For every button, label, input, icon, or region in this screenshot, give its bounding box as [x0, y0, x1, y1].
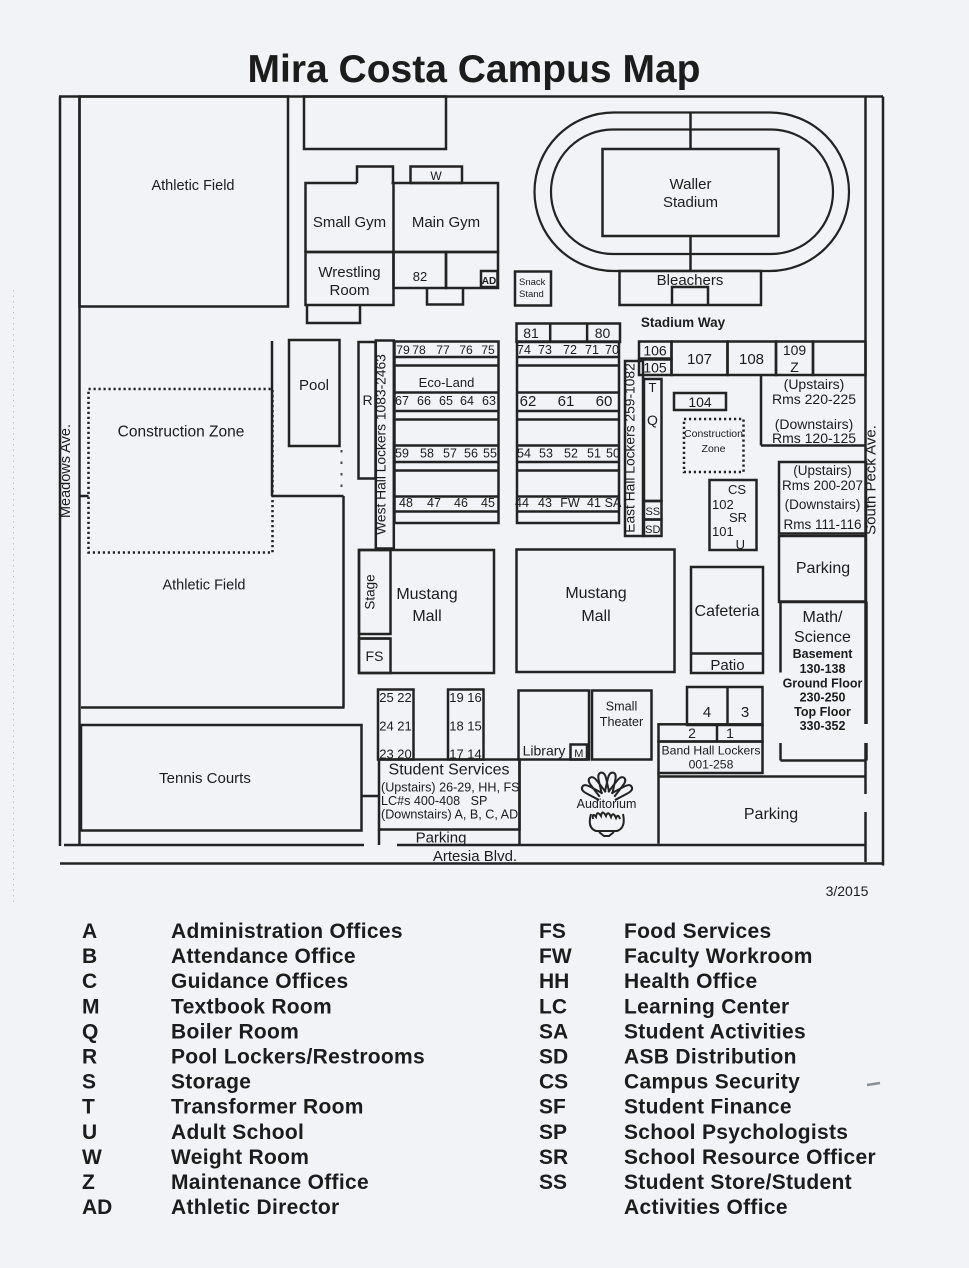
- svg-text:Transformer Room: Transformer Room: [171, 1096, 364, 1119]
- svg-text:130-138: 130-138: [800, 662, 846, 676]
- svg-text:Boiler Room: Boiler Room: [171, 1020, 299, 1043]
- svg-text:Meadows Ave.: Meadows Ave.: [58, 424, 74, 518]
- svg-text:Z: Z: [82, 1171, 95, 1194]
- svg-text:Stand: Stand: [519, 289, 544, 300]
- svg-text:Pool Lockers/Restrooms: Pool Lockers/Restrooms: [171, 1046, 425, 1069]
- svg-text:Campus Security: Campus Security: [624, 1071, 800, 1094]
- svg-text:73: 73: [538, 343, 552, 357]
- svg-text:Zone: Zone: [702, 443, 726, 455]
- svg-text:Learning Center: Learning Center: [624, 995, 790, 1018]
- svg-text:Stadium Way: Stadium Way: [641, 315, 726, 330]
- svg-text:Z: Z: [790, 359, 799, 375]
- svg-text:Parking: Parking: [796, 560, 850, 577]
- svg-text:56: 56: [464, 447, 478, 461]
- svg-text:W: W: [82, 1146, 102, 1169]
- svg-text:66: 66: [417, 394, 431, 408]
- svg-text:Stadium: Stadium: [663, 194, 718, 211]
- svg-text:SP: SP: [539, 1121, 567, 1144]
- svg-text:63: 63: [482, 394, 496, 408]
- svg-text:Theater: Theater: [600, 715, 643, 729]
- svg-text:Activities Office: Activities Office: [624, 1196, 788, 1219]
- svg-text:Health Office: Health Office: [624, 970, 757, 993]
- svg-text:41: 41: [587, 496, 601, 510]
- svg-text:59: 59: [395, 447, 409, 461]
- svg-text:Parking: Parking: [416, 830, 467, 847]
- svg-text:Storage: Storage: [171, 1071, 251, 1094]
- svg-text:001-258: 001-258: [689, 758, 734, 772]
- svg-text:46: 46: [454, 496, 468, 510]
- svg-text:School Resource Officer: School Resource Officer: [624, 1146, 876, 1169]
- svg-text:Eco-Land: Eco-Land: [419, 375, 475, 390]
- svg-text:51: 51: [587, 447, 601, 461]
- svg-text:104: 104: [688, 394, 712, 410]
- svg-text:65: 65: [439, 394, 453, 408]
- svg-text:Ground Floor: Ground Floor: [783, 677, 863, 691]
- svg-text:18 15: 18 15: [449, 719, 482, 734]
- svg-text:1: 1: [726, 725, 734, 741]
- svg-text:Textbook Room: Textbook Room: [171, 995, 332, 1018]
- svg-text:101: 101: [712, 524, 734, 539]
- svg-text:Top Floor: Top Floor: [794, 705, 851, 719]
- svg-text:Q: Q: [647, 412, 658, 428]
- svg-text:58: 58: [420, 447, 434, 461]
- svg-text:(Upstairs) 26-29, HH, FS: (Upstairs) 26-29, HH, FS: [381, 781, 520, 795]
- svg-text:81: 81: [523, 325, 539, 341]
- svg-text:SD: SD: [539, 1046, 568, 1069]
- svg-text:53: 53: [539, 447, 553, 461]
- svg-text:45: 45: [481, 496, 495, 510]
- svg-text:(Upstairs): (Upstairs): [784, 376, 845, 392]
- svg-text:Mall: Mall: [581, 608, 610, 625]
- svg-text:HH: HH: [539, 970, 569, 993]
- svg-text:Tennis Courts: Tennis Courts: [159, 770, 251, 787]
- svg-text:77: 77: [436, 343, 450, 357]
- svg-text:Main Gym: Main Gym: [412, 214, 480, 231]
- svg-text:47: 47: [427, 496, 441, 510]
- svg-text:Rms 111-116: Rms 111-116: [783, 517, 861, 532]
- svg-text:Math/: Math/: [802, 609, 843, 626]
- svg-text:Science: Science: [794, 629, 851, 646]
- svg-text:Guidance Offices: Guidance Offices: [171, 970, 349, 993]
- svg-text:Food Services: Food Services: [624, 920, 771, 943]
- svg-text:Basement: Basement: [793, 647, 854, 661]
- svg-text:SA: SA: [539, 1020, 568, 1043]
- svg-text:Adult School: Adult School: [171, 1121, 304, 1144]
- svg-text:Rms 120-125: Rms 120-125: [772, 430, 856, 446]
- svg-text:R: R: [82, 1046, 97, 1069]
- svg-text:Athletic Field: Athletic Field: [162, 578, 245, 594]
- svg-text:T: T: [82, 1096, 95, 1119]
- svg-text:76: 76: [459, 343, 473, 357]
- svg-text:Artesia Blvd.: Artesia Blvd.: [433, 848, 517, 865]
- svg-text:SA: SA: [605, 496, 622, 510]
- svg-text:Small Gym: Small Gym: [313, 214, 386, 231]
- svg-text:67: 67: [395, 394, 409, 408]
- svg-text:44: 44: [515, 496, 529, 510]
- svg-text:50: 50: [606, 447, 620, 461]
- svg-text:M: M: [82, 995, 100, 1018]
- svg-text:AD: AD: [482, 276, 496, 287]
- svg-text:SS: SS: [645, 506, 660, 518]
- svg-text:Faculty Workroom: Faculty Workroom: [624, 945, 813, 968]
- svg-text:SS: SS: [539, 1171, 567, 1194]
- svg-text:78: 78: [412, 343, 426, 357]
- svg-text:Q: Q: [82, 1020, 98, 1043]
- svg-text:Athletic Field: Athletic Field: [151, 178, 234, 194]
- svg-text:AD: AD: [82, 1196, 112, 1219]
- svg-text:43: 43: [538, 496, 552, 510]
- svg-text:B: B: [82, 945, 97, 968]
- svg-text:FS: FS: [366, 648, 384, 664]
- svg-text:79: 79: [396, 343, 410, 357]
- svg-text:ASB Distribution: ASB Distribution: [624, 1046, 797, 1069]
- svg-text:107: 107: [687, 351, 712, 368]
- svg-text:(Downstairs) A, B, C, AD: (Downstairs) A, B, C, AD: [381, 808, 518, 822]
- svg-text:Mustang: Mustang: [396, 586, 457, 603]
- svg-text:Rms 200-207: Rms 200-207: [782, 478, 863, 493]
- svg-text:52: 52: [564, 447, 578, 461]
- svg-text:T: T: [649, 380, 657, 395]
- svg-text:S: S: [82, 1071, 96, 1094]
- svg-text:SR: SR: [539, 1146, 568, 1169]
- svg-text:Athletic Director: Athletic Director: [171, 1196, 339, 1219]
- svg-text:FW: FW: [539, 945, 572, 968]
- svg-text:Small: Small: [606, 700, 638, 714]
- svg-text:Parking: Parking: [744, 806, 798, 823]
- svg-text:Stage: Stage: [363, 574, 378, 609]
- svg-text:Snack: Snack: [519, 277, 546, 288]
- svg-text:LC#s 400-408 SP: LC#s 400-408 SP: [381, 794, 487, 808]
- svg-text:School Psychologists: School Psychologists: [624, 1121, 848, 1144]
- svg-text:60: 60: [596, 393, 613, 410]
- svg-text:Auditorium: Auditorium: [577, 797, 637, 811]
- svg-text:75: 75: [481, 343, 495, 357]
- svg-text:Rms 220-225: Rms 220-225: [772, 391, 856, 407]
- svg-text:FW: FW: [560, 496, 580, 510]
- svg-text:Attendance Office: Attendance Office: [171, 945, 356, 968]
- svg-text:(Downstairs): (Downstairs): [785, 497, 861, 512]
- svg-text:62: 62: [520, 393, 537, 410]
- svg-text:55: 55: [483, 447, 497, 461]
- svg-text:CS: CS: [539, 1071, 568, 1094]
- svg-text:64: 64: [460, 394, 474, 408]
- svg-text:24 21: 24 21: [379, 719, 412, 734]
- svg-text:SF: SF: [539, 1096, 566, 1119]
- svg-text:2: 2: [688, 725, 696, 741]
- svg-text:Mira Costa Campus Map: Mira Costa Campus Map: [248, 48, 701, 91]
- svg-text:Construction: Construction: [684, 428, 743, 440]
- svg-text:M: M: [574, 748, 583, 760]
- svg-text:Pool: Pool: [299, 377, 329, 394]
- svg-text:CS: CS: [728, 482, 746, 497]
- svg-text:3/2015: 3/2015: [826, 883, 869, 899]
- svg-text:57: 57: [443, 447, 457, 461]
- svg-text:Library: Library: [523, 743, 566, 759]
- svg-text:U: U: [82, 1121, 97, 1144]
- svg-text:80: 80: [595, 325, 611, 341]
- svg-text:230-250: 230-250: [800, 691, 846, 705]
- svg-text:106: 106: [643, 343, 667, 359]
- svg-text:W: W: [430, 169, 442, 183]
- svg-text:West Hall Lockers 1083-2463: West Hall Lockers 1083-2463: [373, 354, 388, 535]
- svg-text:Weight Room: Weight Room: [171, 1146, 309, 1169]
- svg-text:Maintenance Office: Maintenance Office: [171, 1171, 369, 1194]
- svg-text:4: 4: [703, 704, 711, 721]
- svg-text:25 22: 25 22: [379, 690, 412, 705]
- svg-text:Waller: Waller: [670, 176, 712, 193]
- svg-text:71: 71: [585, 343, 599, 357]
- svg-text:74: 74: [517, 343, 531, 357]
- svg-text:Mustang: Mustang: [565, 585, 626, 602]
- svg-text:SR: SR: [729, 510, 747, 525]
- svg-text:19 16: 19 16: [449, 690, 482, 705]
- svg-text:54: 54: [517, 447, 531, 461]
- svg-text:109: 109: [783, 342, 807, 358]
- svg-text:C: C: [82, 970, 97, 993]
- svg-text:Band Hall Lockers: Band Hall Lockers: [662, 744, 761, 758]
- svg-text:Student Finance: Student Finance: [624, 1096, 792, 1119]
- svg-text:Student Store/Student: Student Store/Student: [624, 1171, 852, 1194]
- svg-text:3: 3: [741, 704, 749, 721]
- svg-text:72: 72: [563, 343, 577, 357]
- svg-text:Construction Zone: Construction Zone: [118, 424, 245, 441]
- svg-text:A: A: [82, 920, 97, 943]
- svg-text:Patio: Patio: [710, 657, 744, 674]
- svg-text:70: 70: [605, 343, 619, 357]
- svg-text:48: 48: [399, 496, 413, 510]
- svg-text:Administration Offices: Administration Offices: [171, 920, 403, 943]
- svg-text:Wrestling: Wrestling: [318, 264, 380, 281]
- svg-text:FS: FS: [539, 920, 566, 943]
- svg-text:Room: Room: [329, 282, 369, 299]
- svg-text:61: 61: [558, 393, 575, 410]
- svg-text:Student Services: Student Services: [389, 762, 510, 779]
- svg-text:Mall: Mall: [412, 608, 441, 625]
- svg-text:East Hall Lockers 259-1082: East Hall Lockers 259-1082: [623, 363, 638, 533]
- svg-text:105: 105: [643, 360, 667, 376]
- svg-text:R: R: [362, 392, 372, 408]
- svg-text:(Upstairs): (Upstairs): [793, 463, 852, 478]
- svg-text:SD: SD: [645, 524, 660, 536]
- svg-text:U: U: [736, 537, 745, 552]
- svg-text:Student Activities: Student Activities: [624, 1020, 806, 1043]
- svg-text:108: 108: [739, 351, 764, 368]
- svg-text:LC: LC: [539, 995, 567, 1018]
- svg-text:330-352: 330-352: [800, 719, 846, 733]
- svg-text:82: 82: [413, 269, 427, 284]
- svg-text:Cafeteria: Cafeteria: [695, 603, 760, 620]
